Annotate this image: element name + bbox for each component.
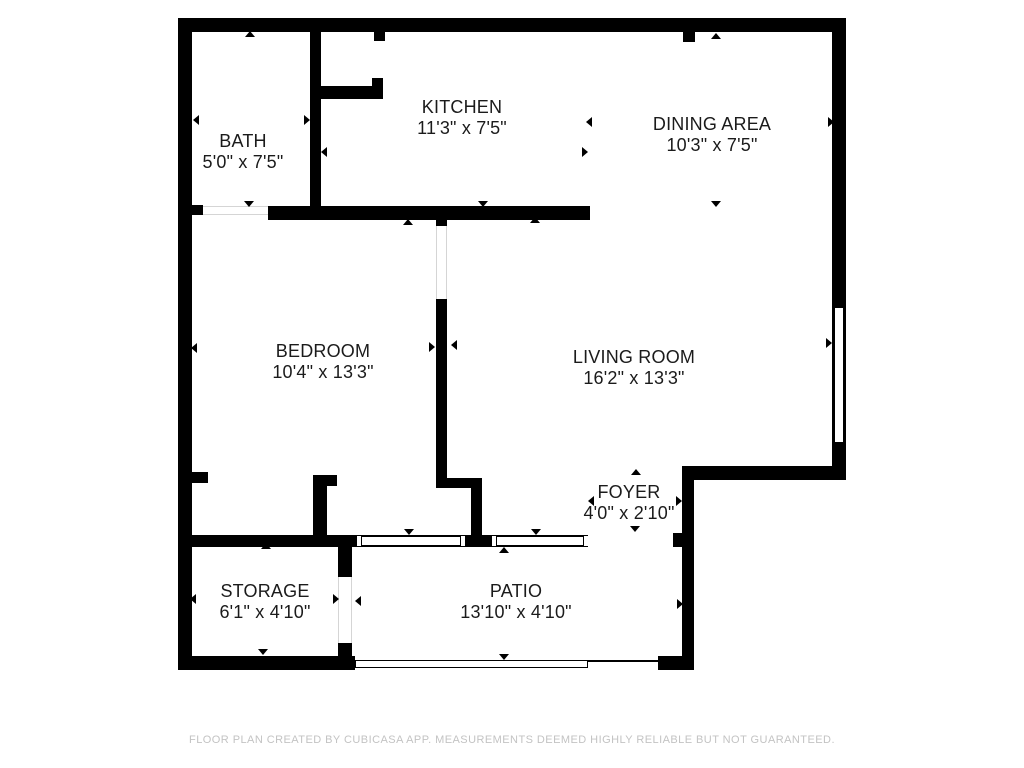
wall-foyer-right-wall (682, 466, 694, 670)
wall-foyer-entry-stub (673, 533, 694, 547)
measure-arrow-right (429, 342, 435, 352)
floorplan-canvas: BATH5'0" x 7'5"KITCHEN11'3" x 7'5"DINING… (0, 0, 1024, 768)
wall-foyer-jog-wall-lower (471, 488, 482, 535)
measure-arrow-left (586, 117, 592, 127)
wall-top-wall (178, 18, 846, 32)
wall-bath-kitchen-wall (310, 32, 321, 206)
measure-arrow-down (244, 201, 254, 207)
measure-arrow-up (245, 31, 255, 37)
wall-kitchen-closet-jamb (372, 78, 383, 99)
room-dimensions-living-room: 16'2" x 13'3" (573, 368, 695, 389)
wall-window-junction-wall (465, 535, 492, 547)
room-dimensions-foyer: 4'0" x 2'10" (583, 503, 674, 524)
room-dimensions-bedroom: 10'4" x 13'3" (272, 362, 373, 383)
room-dimensions-patio: 13'10" x 4'10" (460, 602, 572, 623)
measure-arrow-right (826, 338, 832, 348)
room-name-dining-area: DINING AREA (653, 114, 771, 135)
measure-arrow-left (321, 147, 327, 157)
measure-arrow-down (531, 529, 541, 535)
measure-arrow-right (333, 594, 339, 604)
measure-arrow-left (190, 594, 196, 604)
room-label-bath: BATH5'0" x 7'5" (203, 131, 284, 173)
room-name-patio: PATIO (460, 581, 572, 602)
room-dimensions-kitchen: 11'3" x 7'5" (417, 118, 507, 139)
measure-arrow-down (630, 526, 640, 532)
measure-arrow-down (711, 201, 721, 207)
room-label-living-room: LIVING ROOM16'2" x 13'3" (573, 347, 695, 389)
wall-dining-top-stub (683, 32, 695, 42)
wall-kitchen-living-wall (268, 206, 590, 220)
measure-arrow-up (530, 217, 540, 223)
room-label-storage: STORAGE6'1" x 4'10" (219, 581, 310, 623)
wall-bedroom-living-wall (436, 299, 447, 478)
measure-arrow-up (631, 469, 641, 475)
measure-arrow-up (711, 33, 721, 39)
wall-foyer-step-wall (683, 466, 846, 480)
wall-right-wall-upper (832, 18, 846, 303)
wall-storage-patio-wall-upper (338, 547, 352, 577)
room-name-bedroom: BEDROOM (272, 341, 373, 362)
measure-arrow-right (676, 496, 682, 506)
wall-left-wall (178, 18, 192, 670)
wall-foyer-jog-wall (436, 478, 482, 488)
storage-door (338, 577, 352, 643)
measure-arrow-up (403, 219, 413, 225)
disclaimer-text: FLOOR PLAN CREATED BY CUBICASA APP. MEAS… (0, 734, 1024, 746)
foyer-entry-opening (588, 535, 673, 547)
room-name-kitchen: KITCHEN (417, 97, 507, 118)
measure-arrow-left (451, 340, 457, 350)
measure-arrow-up (261, 543, 271, 549)
floorplan: BATH5'0" x 7'5"KITCHEN11'3" x 7'5"DINING… (0, 0, 1024, 768)
measure-arrow-left (355, 596, 361, 606)
wall-bath-door-stub (192, 205, 203, 215)
wall-storage-bottom-wall (178, 656, 355, 670)
measure-arrow-left (193, 115, 199, 125)
room-label-foyer: FOYER4'0" x 2'10" (583, 482, 674, 524)
room-name-living-room: LIVING ROOM (573, 347, 695, 368)
measure-arrow-up (499, 547, 509, 553)
room-label-bedroom: BEDROOM10'4" x 13'3" (272, 341, 373, 383)
measure-arrow-down (404, 529, 414, 535)
wall-entry-foot-wall (658, 656, 694, 670)
room-name-bath: BATH (203, 131, 284, 152)
measure-arrow-down (478, 201, 488, 207)
room-name-storage: STORAGE (219, 581, 310, 602)
room-dimensions-storage: 6'1" x 4'10" (219, 602, 310, 623)
measure-arrow-right (304, 115, 310, 125)
wall-bedroom-corner-stub (313, 475, 337, 486)
living-room-window (832, 303, 846, 447)
room-name-foyer: FOYER (583, 482, 674, 503)
measure-arrow-right (677, 599, 683, 609)
window-cap (460, 535, 466, 547)
wall-kitchen-closet-stub (374, 32, 385, 41)
measure-arrow-right (582, 147, 588, 157)
patio-open-edge-line (588, 660, 658, 662)
patio-window-right-window (492, 535, 588, 547)
bath-door (203, 206, 268, 215)
room-dimensions-dining-area: 10'3" x 7'5" (653, 135, 771, 156)
room-dimensions-bath: 5'0" x 7'5" (203, 152, 284, 173)
room-label-kitchen: KITCHEN11'3" x 7'5" (417, 97, 507, 139)
room-label-patio: PATIO13'10" x 4'10" (460, 581, 572, 623)
room-label-dining-area: DINING AREA10'3" x 7'5" (653, 114, 771, 156)
wall-bedroom-left-stub (192, 472, 208, 483)
window-cap (832, 442, 846, 447)
measure-arrow-down (258, 649, 268, 655)
measure-arrow-right (828, 117, 834, 127)
measure-arrow-down (499, 654, 509, 660)
measure-arrow-left (191, 343, 197, 353)
window-cap (491, 535, 497, 547)
window-cap (356, 535, 362, 547)
patio-window-left-window (357, 535, 465, 547)
window-cap (832, 303, 846, 308)
bedroom-door (436, 226, 447, 299)
wall-storage-patio-wall-lower (338, 643, 352, 656)
patio-open-edge (355, 660, 588, 668)
